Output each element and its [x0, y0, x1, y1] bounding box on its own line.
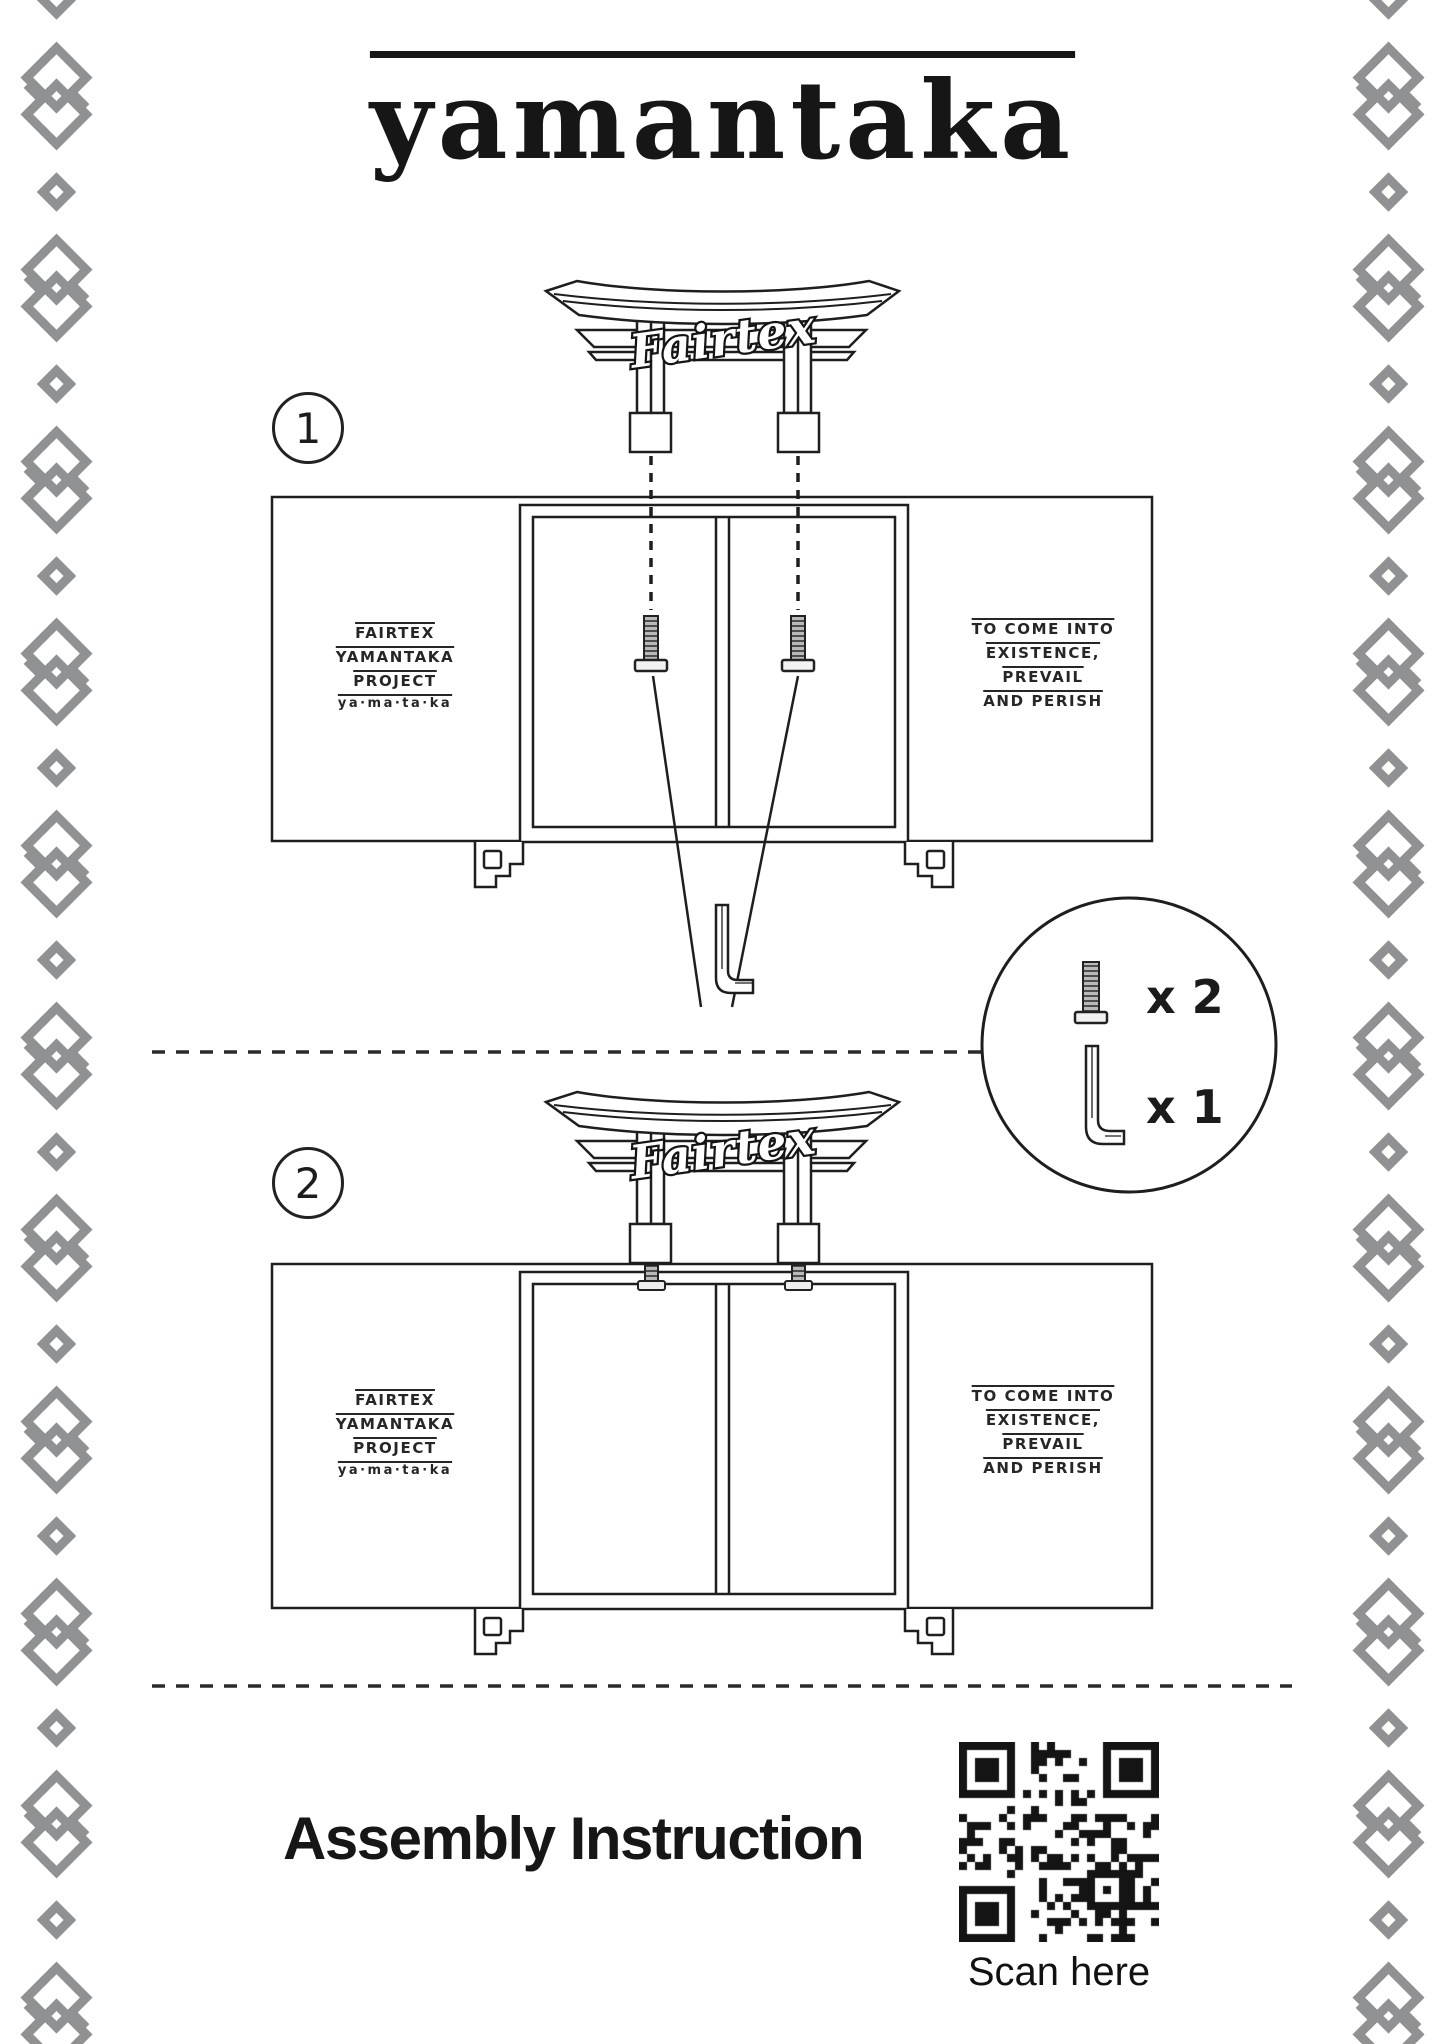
panel-line: FAIRTEX — [355, 624, 435, 642]
qr-code — [959, 1742, 1159, 1942]
panel-line: EXISTENCE, — [986, 644, 1100, 662]
panel-line: TO COME INTO — [972, 620, 1115, 638]
step-2-number: 2 — [295, 1159, 322, 1208]
panel-line: PROJECT — [353, 1439, 437, 1457]
panel-line: PROJECT — [353, 672, 437, 690]
panel-line: AND PERISH — [983, 692, 1103, 710]
allen-key-quantity-label: x 1 — [1146, 1080, 1224, 1134]
step-1-number: 1 — [295, 404, 322, 453]
assembly-instruction-heading: Assembly Instruction — [283, 1804, 863, 1873]
allen-key-icon — [716, 905, 753, 993]
panel-line-tibetan: ya·ma·ta·ka — [338, 696, 452, 711]
panel-line: PREVAIL — [1002, 1435, 1083, 1453]
panel-line: AND PERISH — [983, 1459, 1103, 1477]
assembly-diagram: Fairtex — [0, 0, 1445, 2044]
assembly-instruction-page: yamantaka — [0, 0, 1445, 2044]
parts-legend-circle — [982, 898, 1276, 1192]
panel-line: FAIRTEX — [355, 1391, 435, 1409]
panel-line: TO COME INTO — [972, 1387, 1115, 1405]
step-2-badge: 2 — [272, 1147, 344, 1219]
panel-line: YAMANTAKA — [336, 648, 454, 666]
step-1-badge: 1 — [272, 392, 344, 464]
qr-caption: Scan here — [949, 1950, 1169, 1995]
panel-line: YAMANTAKA — [336, 1415, 454, 1433]
step2-left-panel-text: FAIRTEX YAMANTAKA PROJECT ya·ma·ta·ka — [280, 1369, 510, 1499]
step1-left-panel-text: FAIRTEX YAMANTAKA PROJECT ya·ma·ta·ka — [280, 602, 510, 732]
bolt-quantity-label: x 2 — [1146, 970, 1224, 1024]
panel-line: EXISTENCE, — [986, 1411, 1100, 1429]
panel-line: PREVAIL — [1002, 668, 1083, 686]
step1-right-panel-text: TO COME INTO EXISTENCE, PREVAIL AND PERI… — [928, 600, 1158, 730]
step2-right-panel-text: TO COME INTO EXISTENCE, PREVAIL AND PERI… — [928, 1367, 1158, 1497]
panel-line-tibetan: ya·ma·ta·ka — [338, 1463, 452, 1478]
